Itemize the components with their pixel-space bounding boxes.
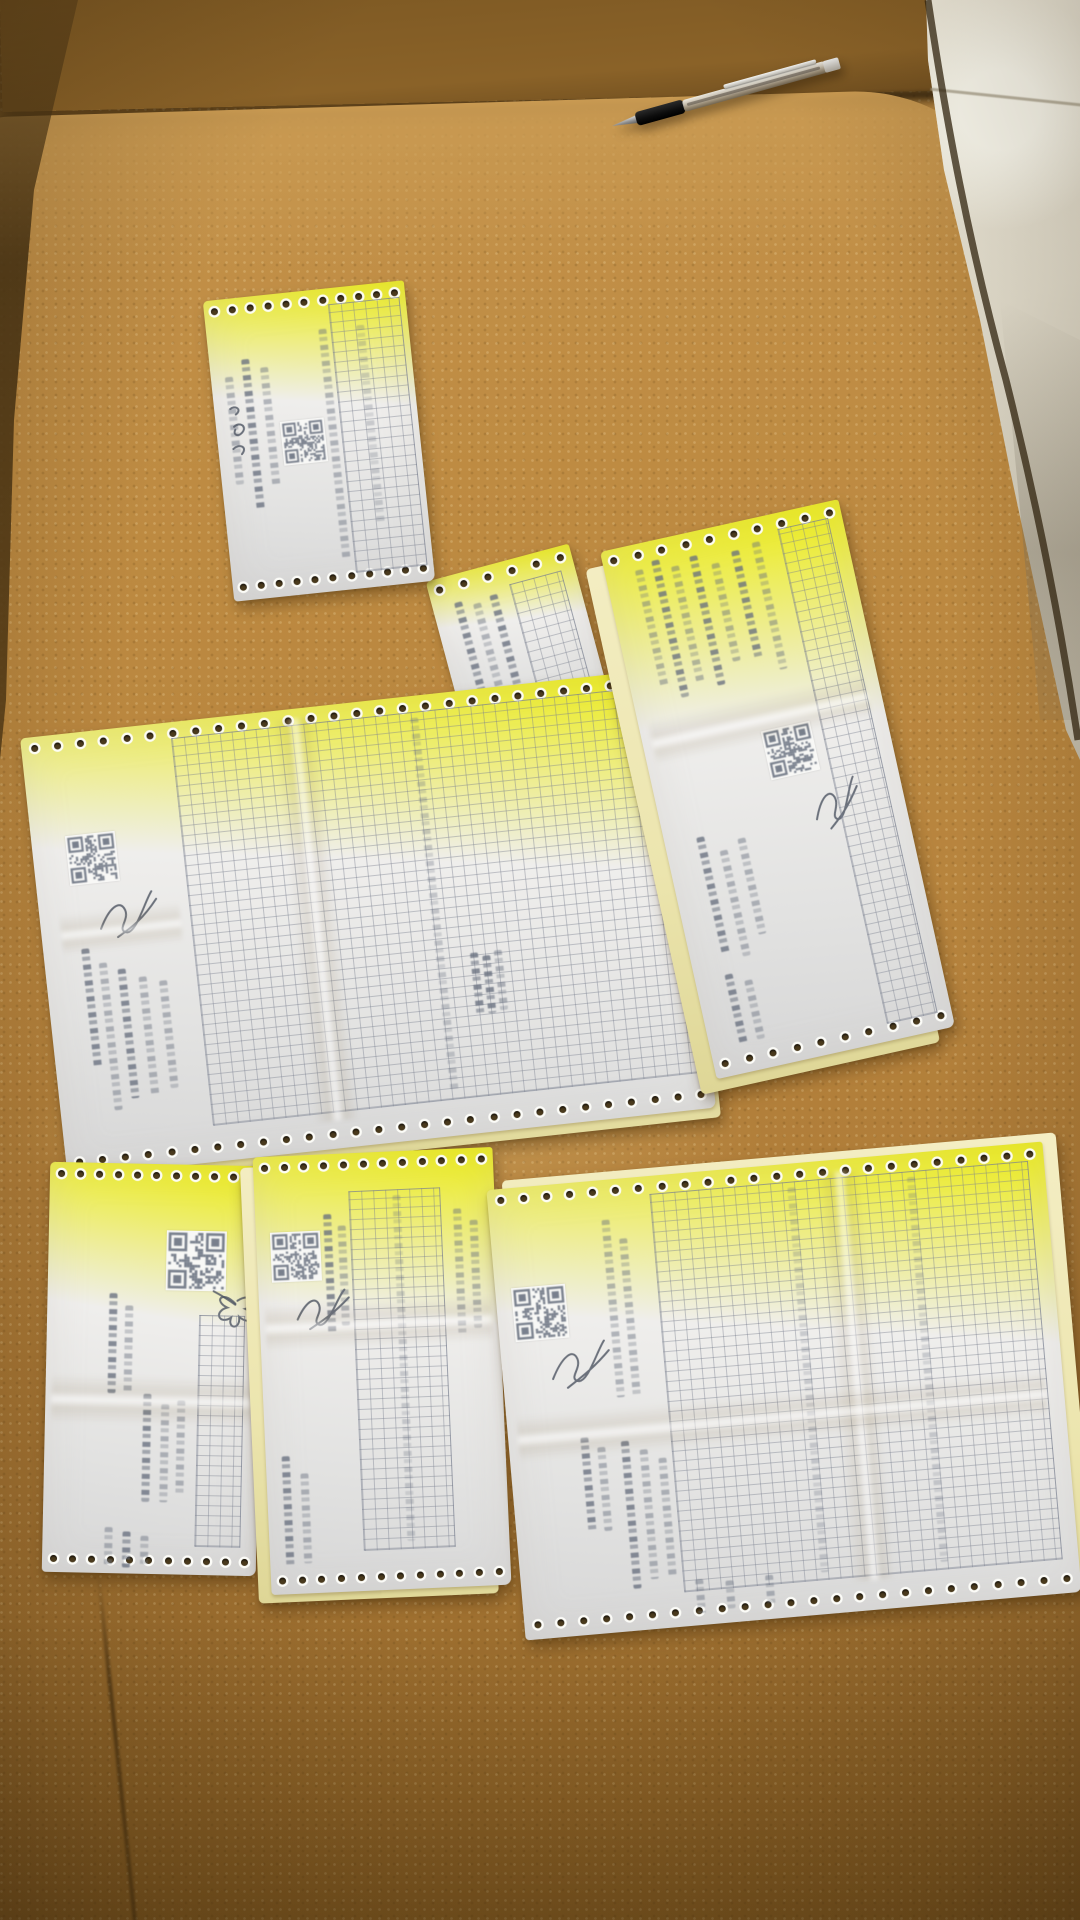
tractor-hole (537, 689, 545, 697)
tractor-hole (379, 1159, 386, 1166)
tractor-hole (336, 294, 344, 302)
tractor-hole (810, 1596, 818, 1604)
tractor-hole (980, 1154, 988, 1162)
tractor-hole (456, 1569, 463, 1576)
tractor-hole (146, 732, 154, 740)
tractor-hole (300, 298, 308, 306)
tractor-hole (229, 305, 237, 313)
tractor-hole (390, 288, 398, 296)
tractor-hole (372, 290, 380, 298)
tractor-hole (318, 1575, 325, 1582)
tractor-hole (211, 307, 219, 315)
tractor-hole (300, 1163, 307, 1170)
tractor-hole (628, 1098, 636, 1106)
tractor-hole (705, 535, 713, 543)
tractor-hole (153, 1171, 160, 1178)
tractor-hole (99, 1155, 107, 1163)
tractor-hole (681, 1180, 689, 1188)
tractor-hole (318, 296, 326, 304)
tractor-hole (718, 1604, 726, 1612)
tractor-hole (1017, 1578, 1025, 1586)
tractor-hole (841, 1032, 849, 1040)
tractor-hole (681, 540, 689, 548)
tractor-hole (239, 583, 247, 591)
tractor-hole (833, 1594, 841, 1602)
tractor-hole (54, 742, 62, 750)
tractor-hole (582, 1103, 590, 1111)
tractor-hole (729, 530, 737, 538)
tractor-hole (902, 1588, 910, 1596)
tractor-hole (911, 1160, 919, 1168)
tractor-hole (520, 1194, 528, 1202)
tractor-hole (260, 1138, 268, 1146)
tractor-hole (330, 712, 338, 720)
tractor-hole (375, 1125, 383, 1133)
tractor-hole (58, 1169, 65, 1176)
tractor-hole (801, 514, 809, 522)
tractor-hole (560, 687, 568, 695)
tractor-hole (769, 1048, 777, 1056)
tractor-hole (311, 575, 319, 583)
fold-crease (265, 1295, 493, 1351)
tractor-hole (123, 734, 131, 742)
tractor-hole (184, 1557, 191, 1564)
tractor-hole (359, 1160, 366, 1167)
tractor-hole (476, 1568, 483, 1575)
tractor-hole (879, 1590, 887, 1598)
tractor-hole (247, 304, 255, 312)
tractor-hole (320, 1162, 327, 1169)
tractor-hole (856, 1592, 864, 1600)
tractor-hole (257, 581, 265, 589)
tractor-hole (293, 577, 301, 585)
tractor-hole (1026, 1150, 1034, 1158)
tractor-hole (888, 1162, 896, 1170)
tractor-hole (491, 694, 499, 702)
tractor-hole (398, 1123, 406, 1131)
tractor-hole (543, 1192, 551, 1200)
tractor-hole (340, 1161, 347, 1168)
tractor-hole (31, 744, 39, 752)
tractor-hole (444, 1118, 452, 1126)
tractor-hole (556, 553, 565, 562)
tractor-hole (468, 697, 476, 705)
tractor-hole (934, 1158, 942, 1166)
document-top (203, 280, 435, 601)
tractor-hole (559, 1105, 567, 1113)
tractor-hole (971, 1582, 979, 1590)
tractor-hole (633, 551, 641, 559)
tractor-hole (484, 572, 493, 581)
tractor-hole (338, 1574, 345, 1581)
tractor-hole (279, 1577, 286, 1584)
tractor-hole (417, 1571, 424, 1578)
tractor-hole (626, 1612, 634, 1620)
tractor-hole (704, 1178, 712, 1186)
tractor-hole (77, 1170, 84, 1177)
pen-tip-icon (611, 115, 638, 130)
tractor-hole (496, 1567, 503, 1574)
tractor-hole (865, 1027, 873, 1035)
tractor-hole (674, 1093, 682, 1101)
tractor-hole (672, 1608, 680, 1616)
tractor-hole (211, 1173, 218, 1180)
tractor-hole (281, 1163, 288, 1170)
tractor-hole (605, 1100, 613, 1108)
tractor-hole (115, 1171, 122, 1178)
tractor-hole (994, 1580, 1002, 1588)
fold-crease (51, 1374, 252, 1426)
tractor-hole (773, 1172, 781, 1180)
tractor-hole (609, 556, 617, 564)
tractor-hole (557, 1619, 565, 1627)
tractor-hole (435, 585, 444, 594)
tractor-hole (421, 1120, 429, 1128)
document-bottom-left (42, 1162, 265, 1576)
tractor-hole (261, 719, 269, 727)
tractor-hole (589, 1188, 597, 1196)
handwritten-annotation (220, 400, 262, 467)
tractor-hole (96, 1170, 103, 1177)
tractor-hole (100, 737, 108, 745)
tractor-hole (467, 1115, 475, 1123)
tractor-hole (352, 1128, 360, 1136)
tractor-hole (514, 692, 522, 700)
tractor-hole (50, 1554, 57, 1561)
tractor-hole (957, 1156, 965, 1164)
tractor-hole (478, 1155, 485, 1162)
tractor-hole (445, 699, 453, 707)
tractor-hole (358, 1573, 365, 1580)
tractor-hole (649, 1610, 657, 1618)
tractor-hole (214, 1143, 222, 1151)
tractor-hole (635, 1184, 643, 1192)
tractor-hole (122, 1153, 130, 1161)
tractor-hole (490, 1113, 498, 1121)
tractor-hole (192, 727, 200, 735)
tractor-hole (534, 1621, 542, 1629)
tractor-hole (376, 707, 384, 715)
tractor-hole (275, 579, 283, 587)
qr-code (280, 417, 328, 465)
tractor-hole (513, 1110, 521, 1118)
tractor-hole (222, 1558, 229, 1565)
tractor-hole (438, 1157, 445, 1164)
tractor-hole (436, 1570, 443, 1577)
tractor-hole (566, 1190, 574, 1198)
photograph (0, 0, 1080, 1920)
tractor-hole (329, 573, 337, 581)
tractor-hole (237, 1140, 245, 1148)
tractor-hole (283, 1135, 291, 1143)
tractor-hole (241, 1558, 248, 1565)
item-grid (194, 1315, 245, 1548)
tractor-hole (532, 559, 541, 568)
document-center (20, 668, 716, 1178)
tractor-hole (168, 1148, 176, 1156)
tractor-hole (299, 1576, 306, 1583)
tractor-hole (825, 508, 833, 516)
tractor-hole (69, 1555, 76, 1562)
tractor-hole (377, 1573, 384, 1580)
tractor-hole (603, 1615, 611, 1623)
tractor-hole (727, 1176, 735, 1184)
tractor-hole (793, 1043, 801, 1051)
tractor-hole (508, 566, 517, 575)
tractor-hole (750, 1174, 758, 1182)
signature (541, 1328, 618, 1396)
tractor-hole (787, 1598, 795, 1606)
tractor-hole (422, 702, 430, 710)
tractor-hole (753, 524, 761, 532)
tractor-hole (745, 1054, 753, 1062)
tractor-hole (282, 300, 290, 308)
tractor-hole (777, 519, 785, 527)
tractor-hole (1003, 1152, 1011, 1160)
tractor-hole (238, 722, 246, 730)
document-bottom-right (486, 1142, 1080, 1641)
tractor-hole (347, 572, 355, 580)
tractor-hole (796, 1170, 804, 1178)
tractor-hole (497, 1196, 505, 1204)
tractor-hole (657, 545, 665, 553)
tractor-hole (1040, 1576, 1048, 1584)
tractor-hole (145, 1150, 153, 1158)
tractor-hole (459, 579, 468, 588)
tractor-hole (741, 1602, 749, 1610)
tractor-hole (536, 1108, 544, 1116)
tractor-hole (1063, 1574, 1071, 1582)
tractor-hole (230, 1173, 237, 1180)
tractor-hole (580, 1617, 588, 1625)
tractor-hole (658, 1182, 666, 1190)
qr-code (270, 1231, 322, 1283)
qr-code (65, 831, 120, 886)
sofa-front-shadow (0, 1620, 1080, 1920)
tractor-hole (261, 1164, 268, 1171)
tractor-hole (612, 1186, 620, 1194)
tractor-hole (948, 1584, 956, 1592)
tractor-hole (721, 1059, 729, 1067)
tractor-hole (88, 1555, 95, 1562)
tractor-hole (458, 1156, 465, 1163)
pen-end-cap (822, 57, 841, 73)
tractor-hole (397, 1572, 404, 1579)
tractor-hole (203, 1558, 210, 1565)
tractor-hole (134, 1171, 141, 1178)
tractor-hole (169, 729, 177, 737)
tractor-hole (329, 1130, 337, 1138)
tractor-hole (353, 709, 361, 717)
tractor-hole (865, 1164, 873, 1172)
tractor-hole (215, 724, 223, 732)
tractor-hole (164, 1557, 171, 1564)
tractor-hole (399, 704, 407, 712)
tractor-hole (354, 292, 362, 300)
tractor-hole (306, 1133, 314, 1141)
tractor-hole (583, 684, 591, 692)
tractor-hole (418, 1157, 425, 1164)
tractor-hole (651, 1095, 659, 1103)
tractor-hole (192, 1172, 199, 1179)
tractor-hole (399, 1158, 406, 1165)
tractor-hole (191, 1145, 199, 1153)
qr-code (166, 1230, 227, 1291)
tractor-hole (77, 739, 85, 747)
tractor-hole (925, 1586, 933, 1594)
tractor-hole (264, 302, 272, 310)
tractor-hole (173, 1172, 180, 1179)
tractor-hole (817, 1038, 825, 1046)
document-bottom-middle (253, 1147, 512, 1595)
